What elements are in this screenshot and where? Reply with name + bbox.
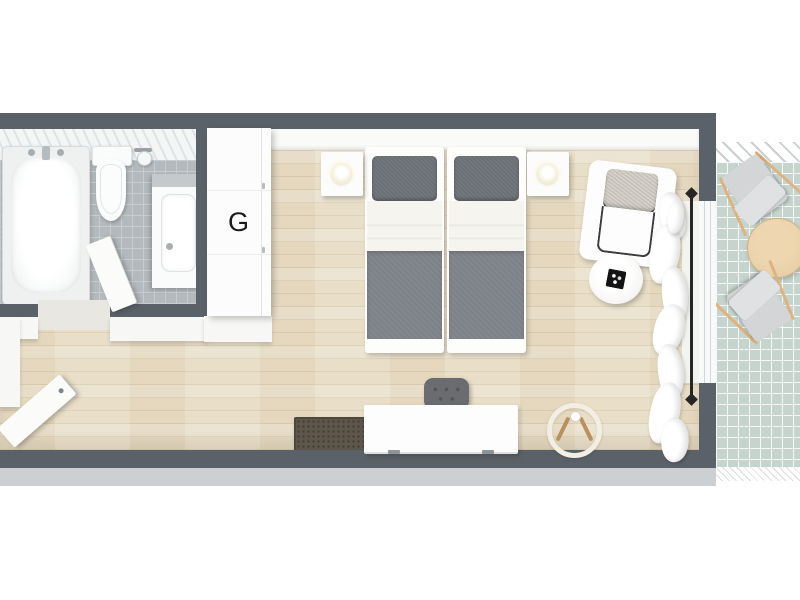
wardrobe-handle	[262, 247, 265, 253]
twin-bed-left	[365, 147, 444, 353]
sink-vanity	[152, 174, 199, 288]
wardrobe: G	[207, 128, 271, 316]
door-mat	[294, 417, 367, 453]
bed-pillow	[372, 156, 437, 201]
wardrobe-label: G	[228, 207, 250, 238]
bed-blanket	[367, 251, 442, 339]
desk-chair	[424, 378, 469, 408]
wardrobe-seam	[207, 190, 271, 191]
bathtub-basin	[11, 157, 81, 293]
floorplan-canvas: G	[0, 0, 800, 600]
lamp-leg	[556, 416, 571, 441]
table-lamp-icon	[537, 163, 558, 184]
wardrobe-seam	[261, 128, 262, 316]
door-handle-icon	[58, 387, 65, 394]
wardrobe-base-face	[204, 316, 272, 342]
wardrobe-handle	[262, 183, 265, 189]
bathroom-wardrobe-wall	[196, 128, 207, 317]
vanity-shelf	[152, 174, 199, 187]
armchair-cushion	[603, 168, 659, 212]
right-wall-lower	[699, 383, 716, 450]
bottom-wall	[0, 450, 716, 468]
bed-sheet	[367, 201, 442, 251]
lamp-leg	[579, 416, 594, 441]
ring-floor-lamp	[547, 403, 602, 458]
decor-tray-icon	[605, 268, 626, 289]
table-lamp-icon	[331, 163, 352, 184]
hallway-wall-face	[0, 317, 20, 407]
nightstand-right	[527, 152, 569, 196]
toilet-paper-holder	[134, 148, 154, 166]
lamp-head-icon	[570, 411, 581, 422]
toilet-seat	[100, 164, 122, 214]
desk	[364, 405, 518, 454]
bed-blanket	[449, 251, 524, 339]
sink-faucet-icon	[166, 243, 173, 250]
interior-wall-left	[0, 304, 38, 317]
nightstand-left	[321, 152, 363, 196]
sink-basin	[161, 194, 196, 272]
twin-bed-right	[447, 147, 526, 353]
bathtub-faucet-icon	[27, 144, 65, 162]
curtain-rod	[690, 193, 693, 399]
toilet-paper-roll	[137, 151, 152, 166]
right-wall-upper	[699, 113, 716, 201]
top-wall	[0, 113, 716, 129]
armchair-seat	[596, 206, 655, 258]
toilet-bowl	[96, 159, 126, 221]
wardrobe-seam	[207, 254, 271, 255]
toilet	[92, 146, 132, 226]
bathroom-doorway-threshold	[38, 300, 110, 330]
bathtub	[2, 146, 90, 305]
bed-sheet	[449, 201, 524, 251]
wall-face-right	[110, 317, 207, 341]
side-table	[589, 254, 643, 304]
balcony-hatch-bottom	[716, 467, 800, 481]
bottom-wall-outer-face	[0, 468, 716, 486]
bed-pillow	[454, 156, 519, 201]
window-frame-outer	[699, 201, 716, 383]
